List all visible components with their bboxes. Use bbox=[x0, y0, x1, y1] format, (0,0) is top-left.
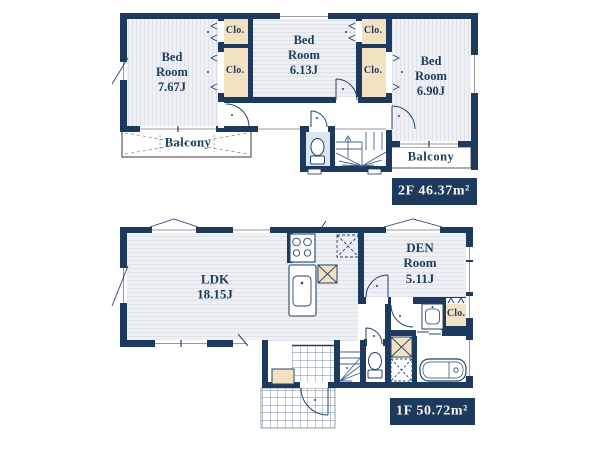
ldk-floor bbox=[127, 233, 358, 341]
floor-area-label-2f: 2F 46.37m² bbox=[398, 184, 470, 201]
floor-storage-icon bbox=[318, 265, 337, 283]
room-label-bedroom-7-67: Bed Room 7.67J bbox=[156, 50, 188, 94]
washbasin-icon bbox=[422, 304, 443, 329]
washer-pan-icon bbox=[391, 337, 412, 357]
bathtub-icon bbox=[420, 359, 466, 381]
entrance-tile bbox=[292, 346, 334, 382]
toilet-icon-2f bbox=[311, 139, 325, 165]
kitchen-sink-icon bbox=[289, 265, 316, 316]
entrance-porch-tile bbox=[261, 388, 335, 428]
room-label-ldk: LDK 18.15J bbox=[197, 272, 233, 303]
closet-label-d: Clo. bbox=[364, 65, 382, 77]
closet-label-1f: Clo. bbox=[447, 308, 465, 320]
closet-label-b: Clo. bbox=[226, 65, 244, 77]
balcony-right-label: Balcony bbox=[408, 150, 455, 165]
room-label-bedroom-6-13: Bed Room 6.13J bbox=[288, 33, 320, 77]
floor-area-label-1f: 1F 50.72m² bbox=[396, 404, 468, 421]
room-label-bedroom-6-90: Bed Room 6.90J bbox=[415, 54, 447, 98]
closet-label-a: Clo. bbox=[226, 25, 244, 37]
shoe-cabinet bbox=[272, 369, 294, 384]
stove-icon bbox=[290, 234, 315, 262]
room-label-den: DEN Room 5.11J bbox=[403, 240, 436, 286]
floor-plan-image: Bed Room 7.67J Bed Room 6.13J Bed Room 6… bbox=[0, 0, 600, 450]
closet-label-c: Clo. bbox=[364, 25, 382, 37]
toilet-icon-1f bbox=[368, 353, 382, 379]
balcony-left-label: Balcony bbox=[165, 136, 212, 151]
